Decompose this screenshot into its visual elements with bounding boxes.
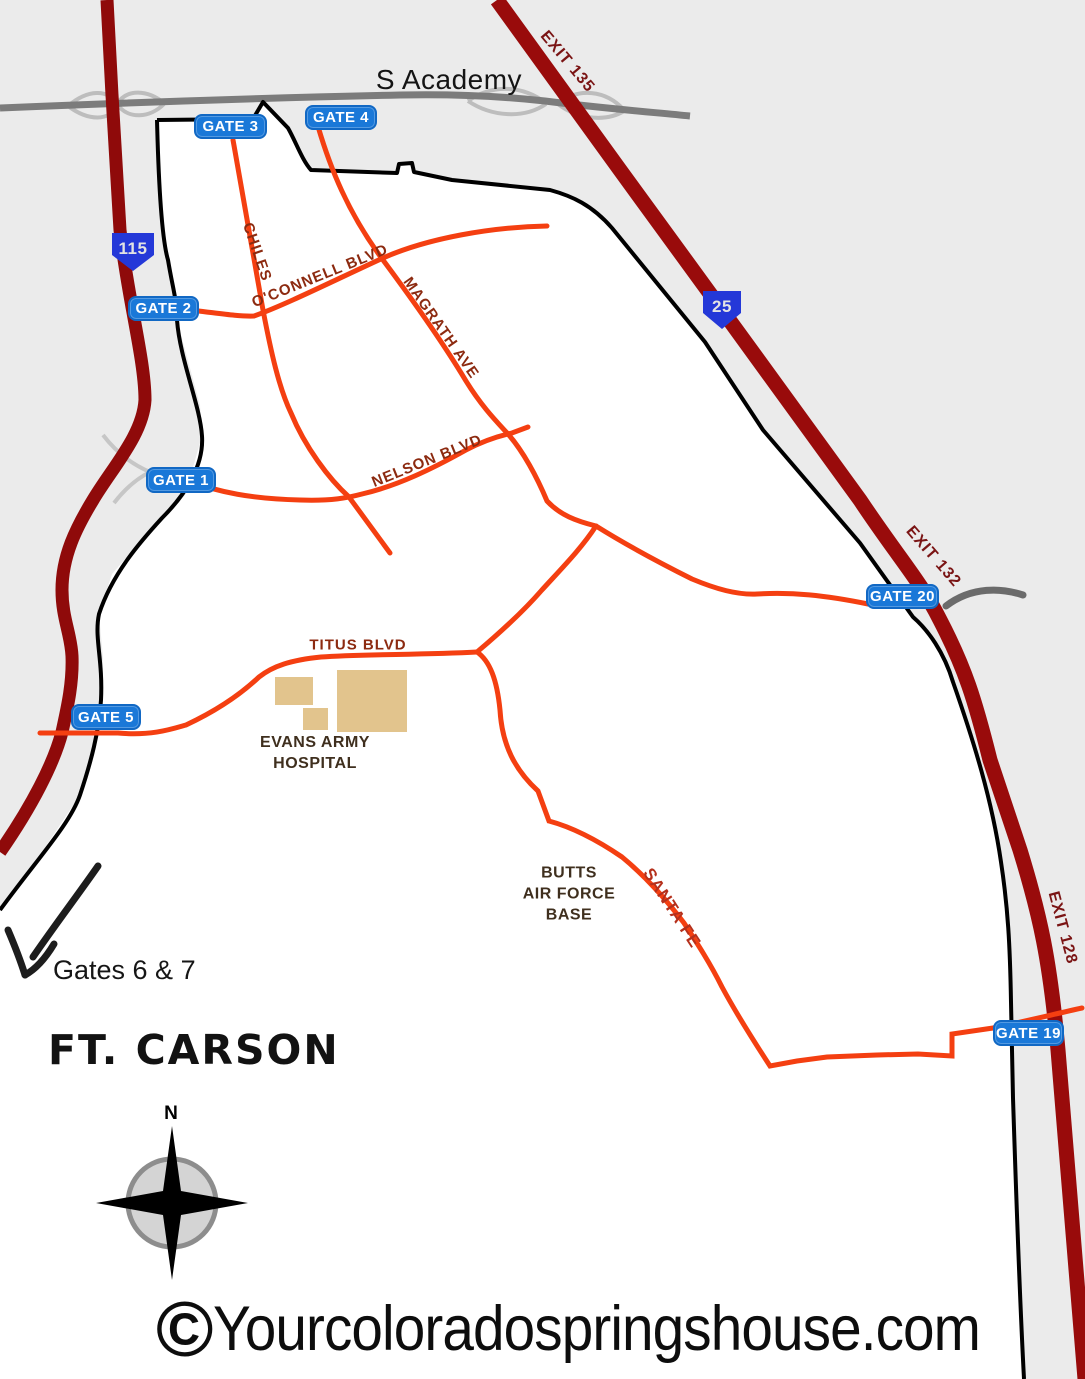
highway-115-shield-number: 115	[119, 239, 148, 259]
titus-blvd-label: TITUS BLVD	[309, 638, 406, 653]
butts-line3: BASE	[523, 905, 616, 926]
watermark-text: Yourcoloradospringshouse.com	[213, 1294, 980, 1364]
gate-19-badge: GATE 19	[993, 1020, 1064, 1046]
butts-air-force-base-label: BUTTS AIR FORCE BASE	[523, 863, 616, 926]
map-canvas	[0, 0, 1085, 1379]
butts-line2: AIR FORCE	[523, 884, 616, 905]
evans-army-hospital-line2: HOSPITAL	[260, 753, 370, 774]
highway-25-shield-number: 25	[712, 297, 732, 317]
gate-20-badge: GATE 20	[866, 584, 939, 609]
fort-carson-title: FT. CARSON	[48, 1026, 340, 1074]
evans-army-hospital-line1: EVANS ARMY	[260, 732, 370, 753]
gates-6-7-note: Gates 6 & 7	[53, 955, 196, 986]
compass-north-label: N	[164, 1103, 178, 1125]
watermark: © Yourcoloradospringshouse.com	[156, 1294, 1066, 1364]
gate-5-badge: GATE 5	[71, 704, 141, 730]
copyright-icon: ©	[156, 1294, 213, 1364]
hospital-building-main	[337, 670, 407, 732]
ft-carson-map: S Academy EXIT 135 EXIT 132 EXIT 128 CHI…	[0, 0, 1085, 1379]
gate-4-badge: GATE 4	[305, 105, 377, 130]
hospital-building-small	[303, 708, 328, 730]
gate-1-badge: GATE 1	[146, 467, 216, 493]
butts-line1: BUTTS	[523, 863, 616, 884]
gate-2-badge: GATE 2	[128, 296, 199, 321]
evans-army-hospital-label: EVANS ARMY HOSPITAL	[260, 732, 370, 774]
s-academy-label: S Academy	[376, 64, 522, 96]
hospital-building-west	[275, 677, 313, 705]
gate-3-badge: GATE 3	[194, 114, 267, 139]
